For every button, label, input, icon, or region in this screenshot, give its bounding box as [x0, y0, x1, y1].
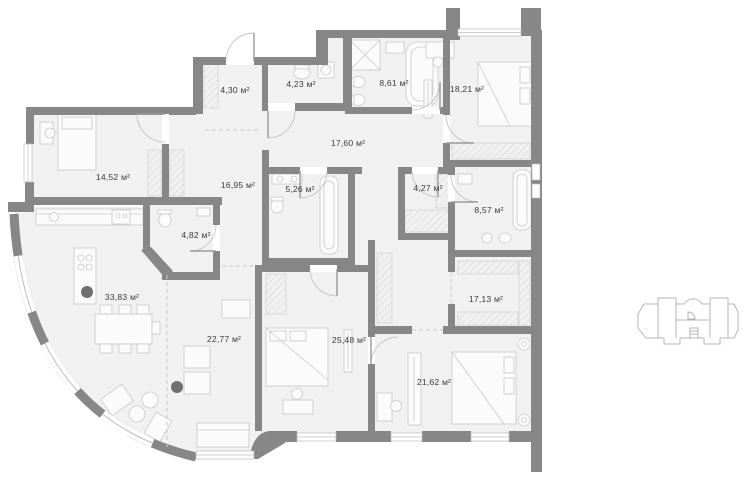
room-area-label-bath-5-26: 5,26 м² — [285, 184, 314, 194]
room-area-label-kitchen: 33,83 м² — [105, 292, 139, 302]
bedroom-wardrobe — [452, 143, 530, 159]
entry-door — [226, 33, 254, 65]
floor-plan-page: 4,30 м² 4,23 м² 8,61 м² 18,21 м² 14,52 м… — [0, 0, 750, 481]
lobby-wardrobe — [377, 253, 392, 323]
column-living — [171, 381, 183, 393]
closet-shelf-a — [405, 210, 450, 232]
kitchen-counter — [36, 209, 143, 225]
room-area-label-bedroom-top-right: 18,21 м² — [450, 84, 484, 94]
building-footprint-mini-map — [638, 298, 738, 344]
wardrobe-shelf-top — [458, 261, 518, 274]
room-area-label-hallway: 16,95 м² — [221, 180, 255, 190]
column-kitchen — [81, 286, 93, 298]
room-area-label-master-bath: 8,61 м² — [379, 78, 408, 88]
hall-wardrobe-b — [170, 150, 184, 196]
room-area-label-bath-8-57: 8,57 м² — [474, 205, 503, 215]
entry-wardrobe — [204, 64, 218, 108]
room-area-label-corridor: 17,60 м² — [331, 138, 365, 148]
wardrobe-shelf-right — [519, 261, 530, 325]
hall-wardrobe-a — [148, 150, 161, 196]
floor-plan-drawing: 4,30 м² 4,23 м² 8,61 м² 18,21 м² 14,52 м… — [0, 0, 750, 481]
bedroom-middle-wardrobe — [266, 274, 286, 314]
room-area-label-closet: 4,27 м² — [413, 183, 442, 193]
room-area-label-wc: 4,82 м² — [181, 230, 210, 240]
room-area-label-guest-bath: 4,23 м² — [286, 79, 315, 89]
room-area-label-entry: 4,30 м² — [220, 85, 249, 95]
room-area-label-living: 22,77 м² — [207, 334, 241, 344]
wardrobe-shelf-bottom — [458, 312, 518, 325]
room-area-label-bedroom-bottom-right: 21,62 м² — [417, 377, 451, 387]
room-area-label-bedroom-middle: 25,48 м² — [332, 335, 366, 345]
room-area-label-wardrobe: 17,13 м² — [469, 294, 503, 304]
room-area-label-room-left: 14,52 м² — [96, 172, 130, 182]
